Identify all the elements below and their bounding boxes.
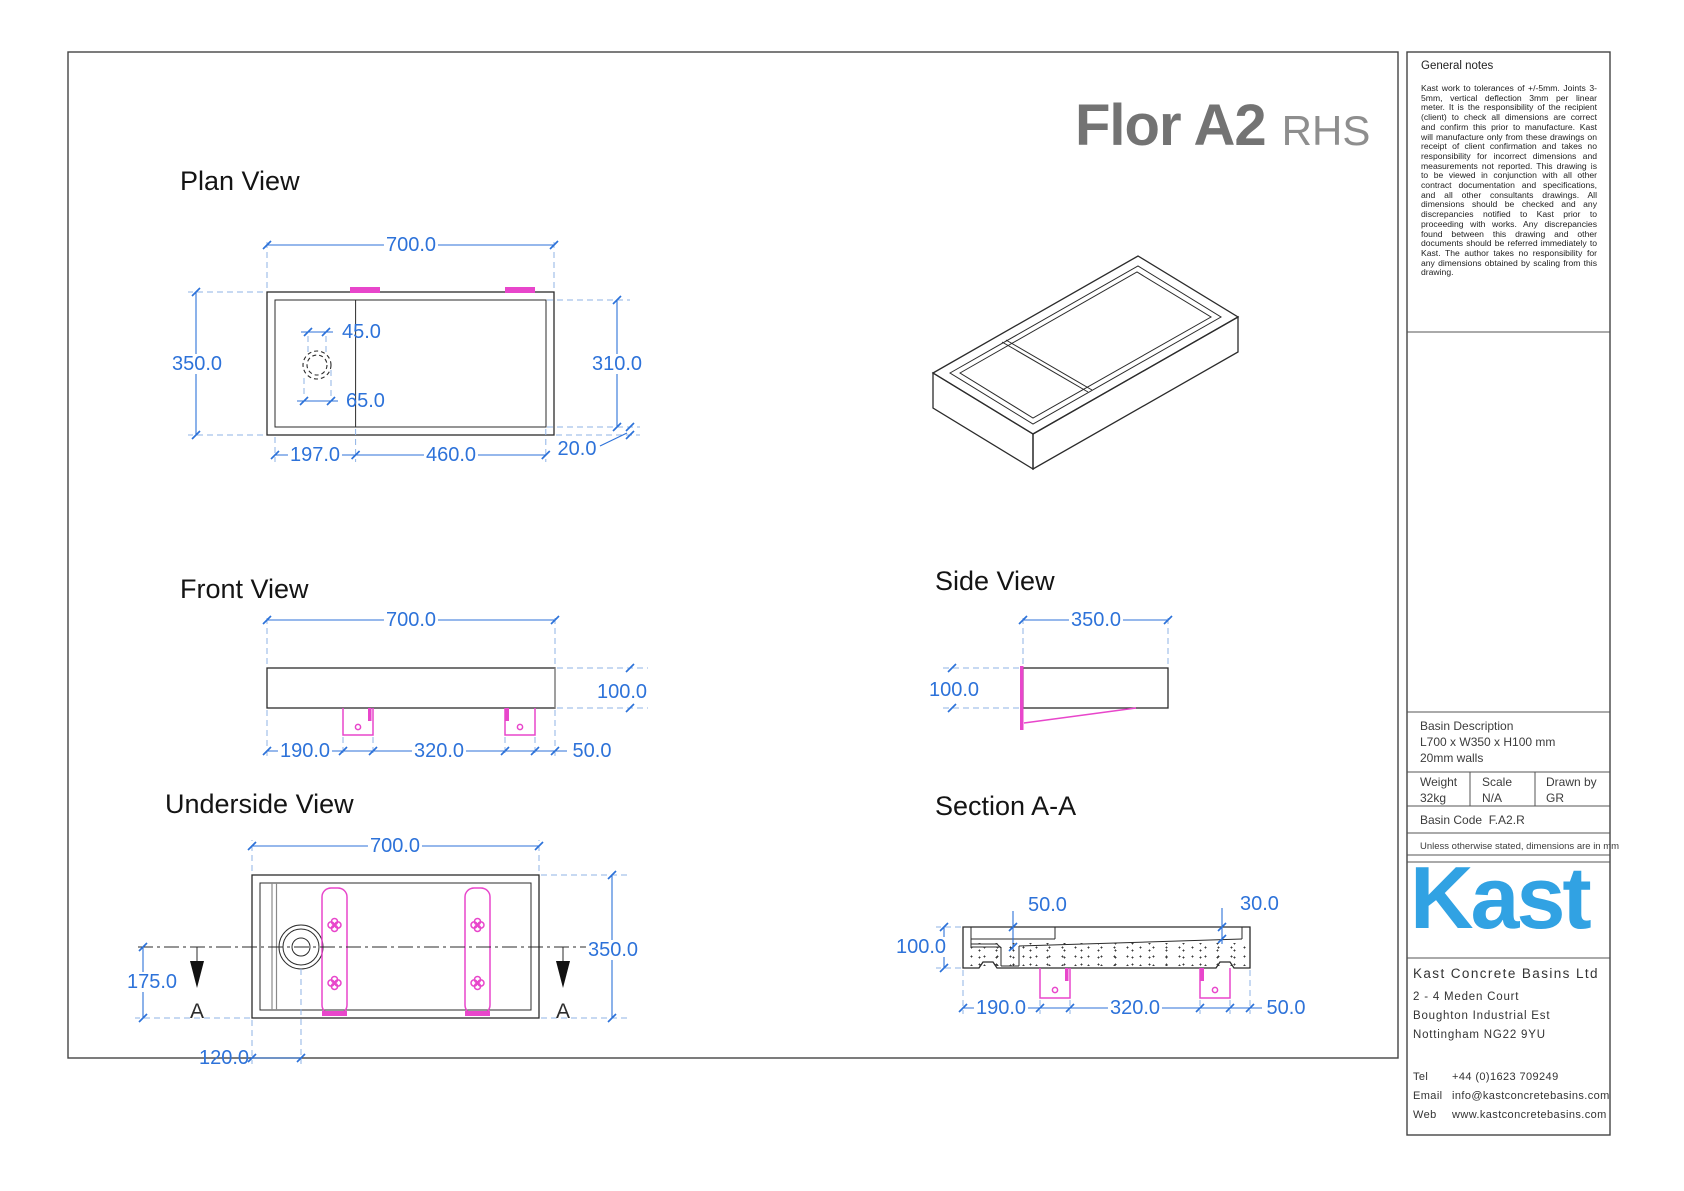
- basin-code-label: Basin Code: [1420, 813, 1482, 827]
- section-arrow: [556, 961, 570, 988]
- company-address-2: Boughton Industrial Est: [1413, 1010, 1550, 1022]
- section-view-title: Section A-A: [935, 791, 1076, 822]
- front-dim-right: 50.0: [571, 741, 614, 761]
- front-view-drawing: [263, 614, 648, 757]
- section-marker-a1: A: [190, 1000, 204, 1024]
- plan-view-drawing: [188, 240, 640, 462]
- screw-fixing: [328, 919, 484, 990]
- front-dim-height: 100.0: [595, 682, 649, 702]
- basin-code-row: Basin Code F.A2.R: [1420, 812, 1525, 828]
- fixing-tab: [350, 287, 380, 293]
- section-dim-centers: 320.0: [1108, 998, 1162, 1018]
- section-dim-left: 190.0: [974, 998, 1028, 1018]
- fixing-tab: [505, 287, 535, 293]
- underside-dim-width: 700.0: [368, 836, 422, 856]
- drawn-by-label: Drawn by: [1546, 774, 1597, 790]
- bracket-slot: [322, 888, 347, 1014]
- product-name: Flor A2: [1075, 92, 1266, 159]
- plan-dim-drain-a: 45.0: [340, 322, 383, 342]
- page-title: Flor A2 RHS: [1075, 92, 1370, 159]
- side-dim-height: 100.0: [927, 680, 981, 700]
- web-value: www.kastconcretebasins.com: [1452, 1109, 1607, 1121]
- email-value: info@kastconcretebasins.com: [1452, 1090, 1610, 1102]
- company-address-3: Nottingham NG22 9YU: [1413, 1029, 1546, 1041]
- side-view-drawing: [940, 614, 1172, 730]
- front-view-title: Front View: [180, 574, 309, 605]
- basin-code-value: F.A2.R: [1489, 813, 1525, 827]
- underside-dim-drain: 120.0: [197, 1048, 251, 1068]
- basin-dimensions: L700 x W350 x H100 mm: [1420, 734, 1555, 750]
- scale-value: N/A: [1482, 790, 1512, 806]
- basin-description-block: Basin Description L700 x W350 x H100 mm …: [1420, 718, 1555, 766]
- underside-view-title: Underside View: [165, 789, 354, 820]
- plan-dim-drain-b: 65.0: [344, 391, 387, 411]
- tel-value: +44 (0)1623 709249: [1452, 1071, 1559, 1083]
- plan-dim-shelf: 197.0: [288, 445, 342, 465]
- front-dim-centers: 320.0: [412, 741, 466, 761]
- email-label: Email: [1413, 1090, 1443, 1102]
- plan-dim-wall: 20.0: [556, 439, 599, 459]
- side-dim-depth: 350.0: [1069, 610, 1123, 630]
- section-dim-depth-drain: 50.0: [1026, 895, 1069, 915]
- weight-value: 32kg: [1420, 790, 1457, 806]
- plan-dim-inner-depth: 310.0: [590, 354, 644, 374]
- concrete-texture: [965, 943, 1248, 966]
- weight-label: Weight: [1420, 774, 1457, 790]
- plan-view-title: Plan View: [180, 166, 300, 197]
- section-arrow: [190, 961, 204, 988]
- drawn-by-value: GR: [1546, 790, 1597, 806]
- drawn-by-cell: Drawn by GR: [1546, 774, 1597, 806]
- notes-heading: General notes: [1421, 60, 1597, 72]
- wall-bracket: [1200, 968, 1230, 998]
- front-dim-left: 190.0: [278, 741, 332, 761]
- wall-plate: [1020, 666, 1024, 730]
- kast-logo: Kast: [1410, 854, 1589, 942]
- company-name: Kast Concrete Basins Ltd: [1413, 966, 1599, 981]
- notes-body: Kast work to tolerances of +/-5mm. Joint…: [1421, 84, 1597, 278]
- scale-cell: Scale N/A: [1482, 774, 1512, 806]
- general-notes: General notes Kast work to tolerances of…: [1421, 60, 1597, 278]
- plan-dim-depth: 350.0: [170, 354, 224, 374]
- section-marker-a2: A: [556, 1000, 570, 1024]
- underside-dim-depth: 350.0: [586, 940, 640, 960]
- side-view-title: Side View: [935, 566, 1055, 597]
- basin-walls: 20mm walls: [1420, 750, 1555, 766]
- plan-dim-width: 700.0: [384, 235, 438, 255]
- section-dim-depth-end: 30.0: [1238, 894, 1281, 914]
- section-dim-height: 100.0: [894, 937, 948, 957]
- drawing-sheet: Flor A2 RHS Plan View Front View Side Vi…: [0, 0, 1684, 1191]
- underside-view-drawing: [135, 840, 628, 1064]
- front-dim-width: 700.0: [384, 610, 438, 630]
- scale-label: Scale: [1482, 774, 1512, 790]
- product-variant: RHS: [1282, 107, 1371, 155]
- section-dim-right: 50.0: [1265, 998, 1308, 1018]
- tel-label: Tel: [1413, 1071, 1428, 1083]
- wall-bracket: [505, 708, 535, 735]
- basin-description-label: Basin Description: [1420, 718, 1555, 734]
- underside-dim-section: 175.0: [125, 972, 179, 992]
- company-address-1: 2 - 4 Meden Court: [1413, 991, 1519, 1003]
- isometric-view-drawing: [933, 256, 1238, 469]
- web-label: Web: [1413, 1109, 1437, 1121]
- bracket-slot: [465, 888, 490, 1014]
- plan-dim-bowl: 460.0: [424, 445, 478, 465]
- weight-cell: Weight 32kg: [1420, 774, 1457, 806]
